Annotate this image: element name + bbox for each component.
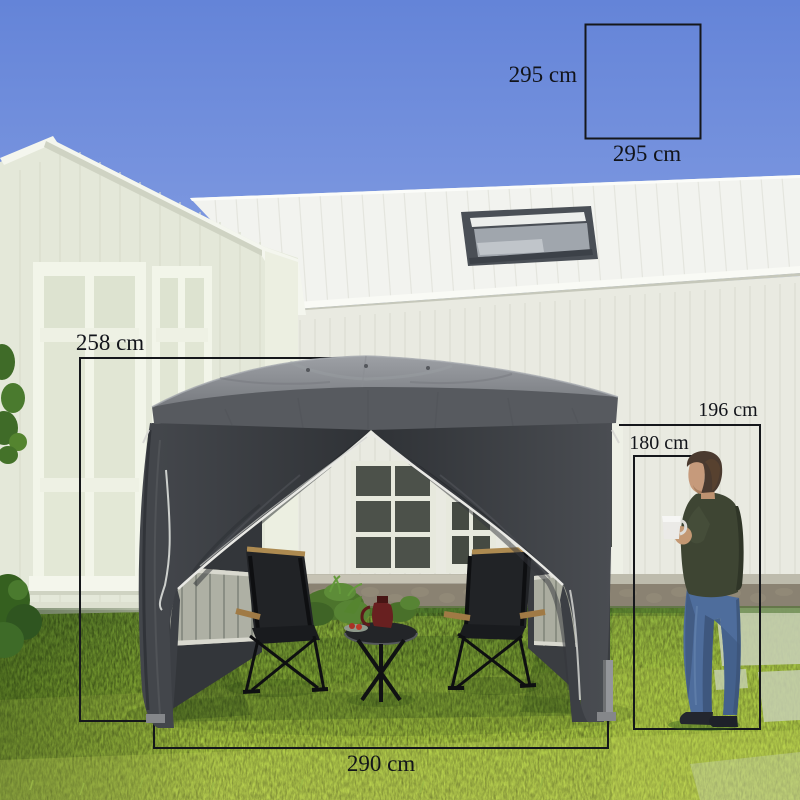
svg-text:258 cm: 258 cm — [76, 330, 144, 355]
svg-text:180 cm: 180 cm — [629, 432, 689, 454]
svg-text:290 cm: 290 cm — [347, 751, 415, 776]
svg-text:196 cm: 196 cm — [698, 399, 758, 421]
svg-text:295 cm: 295 cm — [613, 141, 681, 166]
svg-text:295 cm: 295 cm — [509, 62, 577, 87]
